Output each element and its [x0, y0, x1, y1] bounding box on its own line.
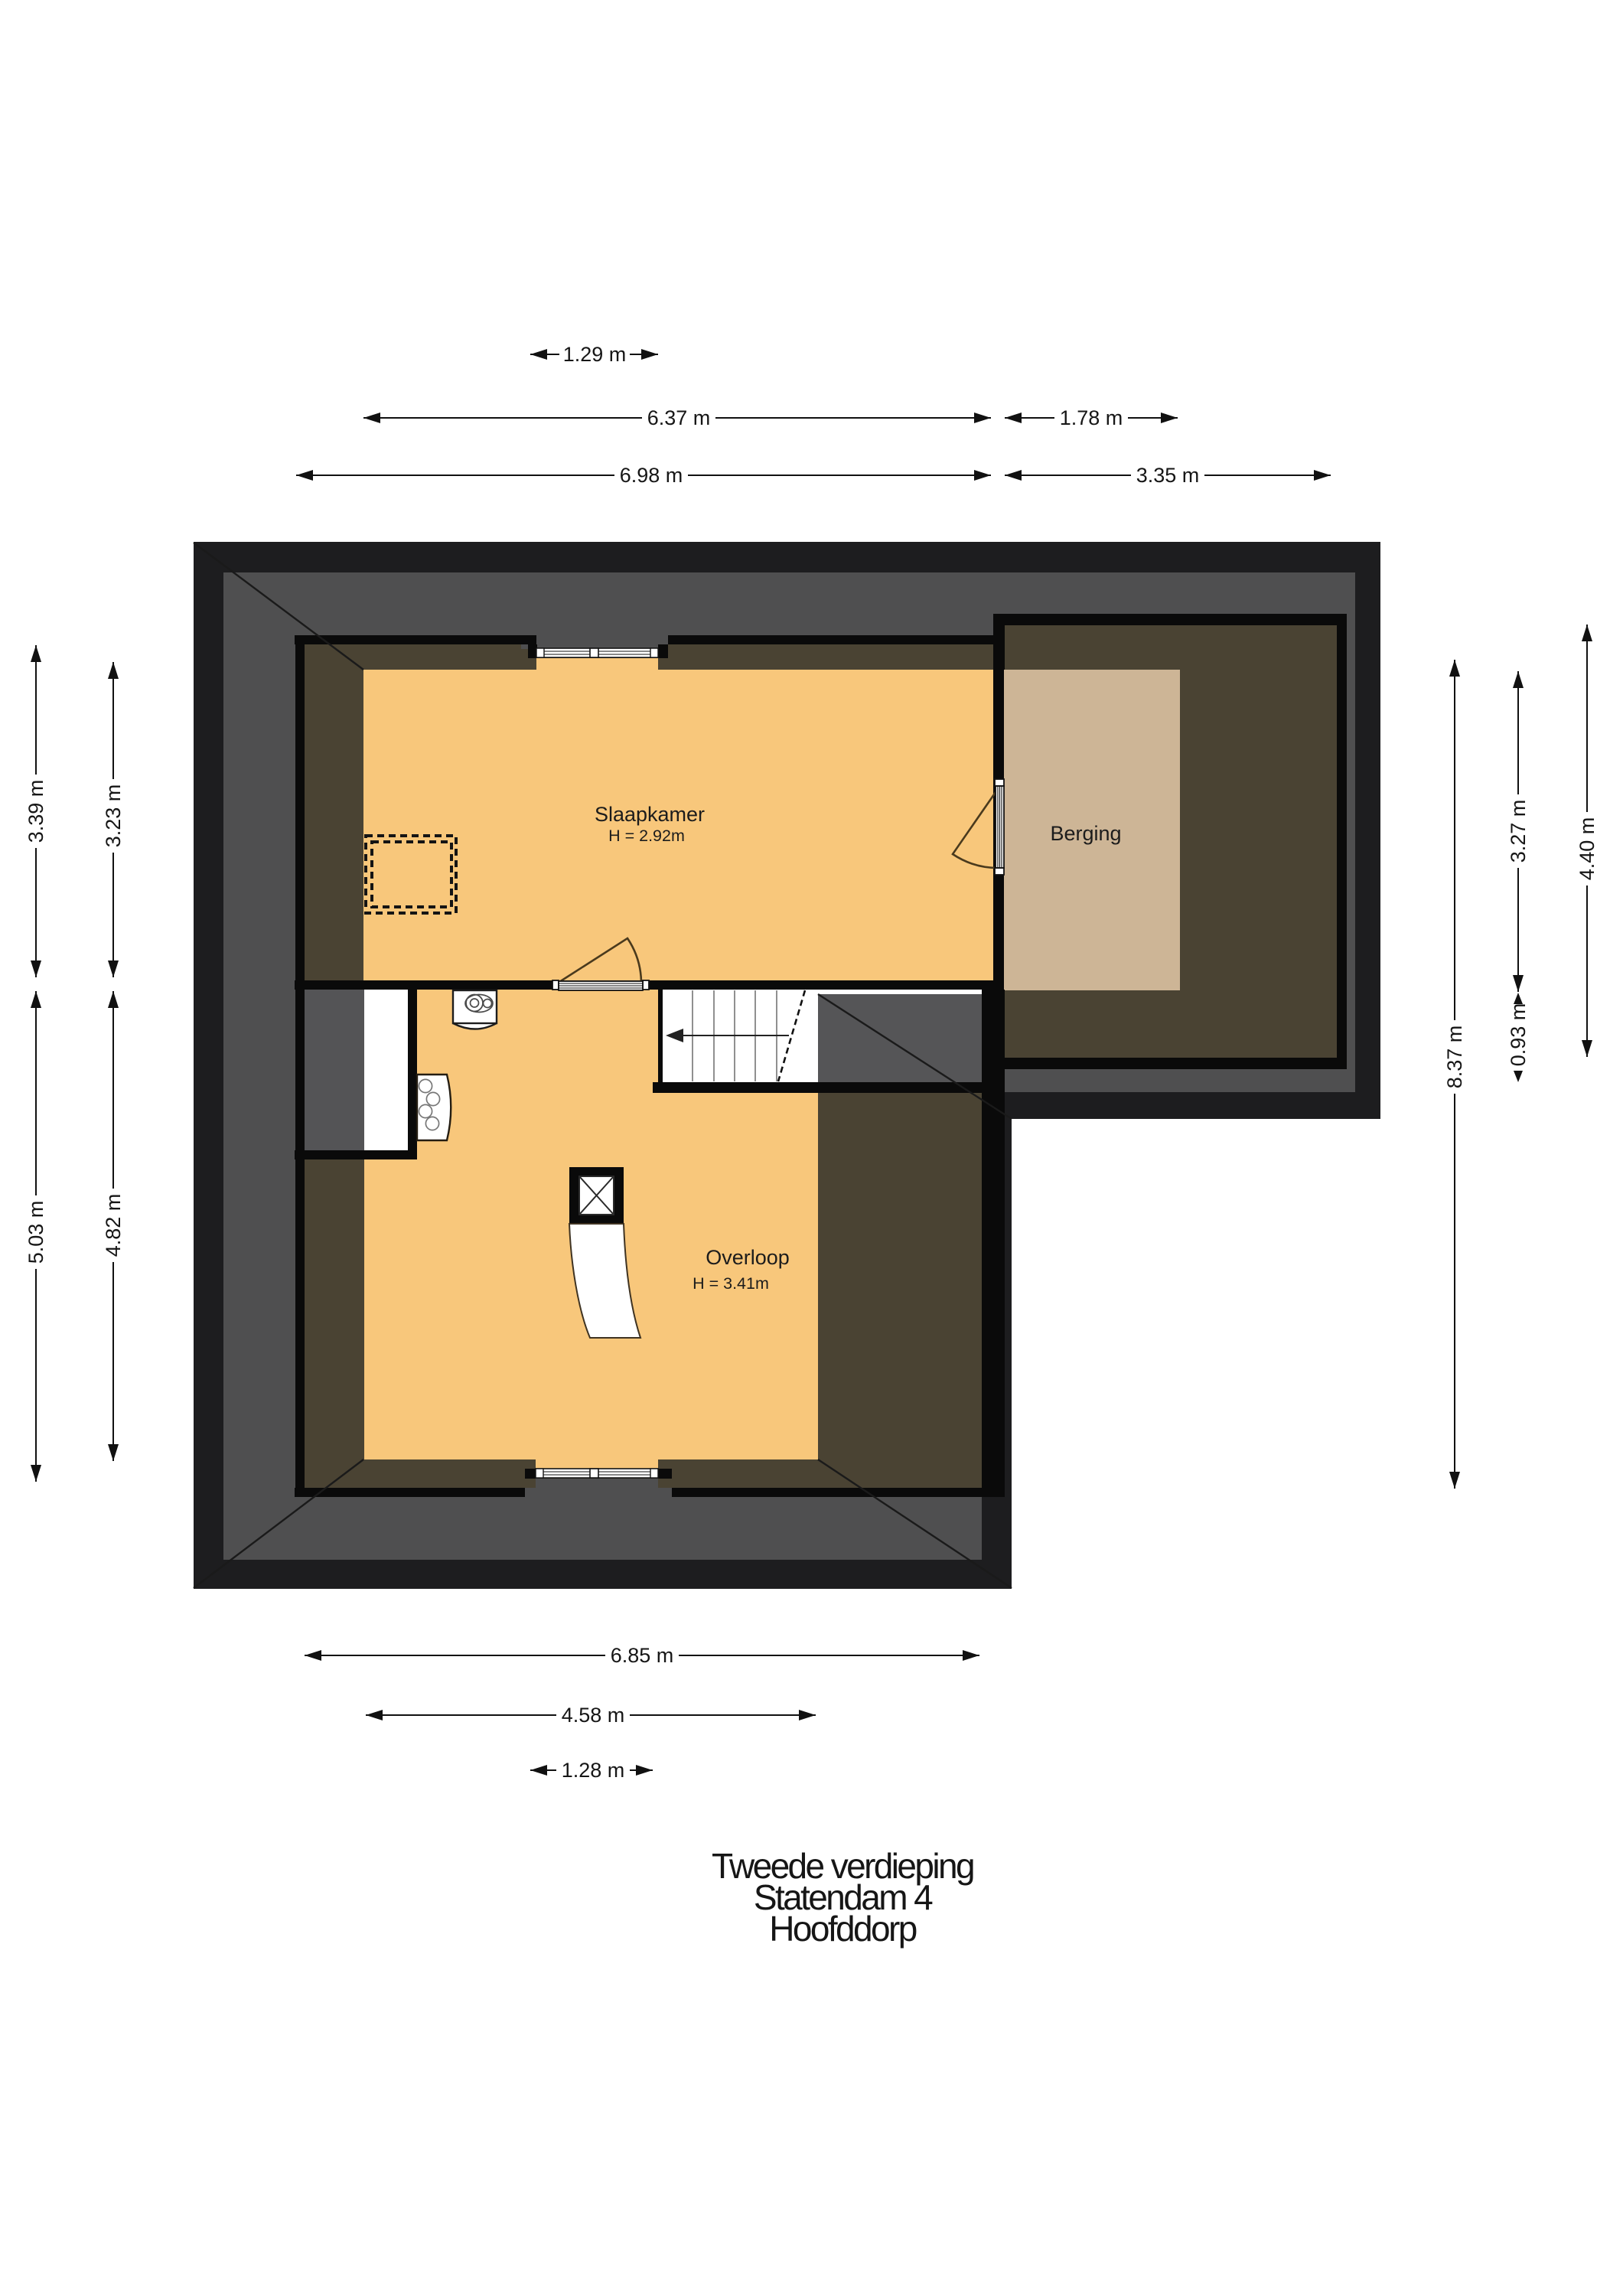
- svg-text:Overloop: Overloop: [706, 1246, 790, 1269]
- svg-text:4.82 m: 4.82 m: [102, 1194, 125, 1257]
- svg-text:Slaapkamer: Slaapkamer: [595, 803, 705, 826]
- svg-text:0.93 m: 0.93 m: [1507, 1003, 1530, 1067]
- svg-text:3.27 m: 3.27 m: [1507, 800, 1530, 863]
- svg-text:3.35 m: 3.35 m: [1136, 464, 1200, 487]
- svg-text:3.23 m: 3.23 m: [102, 784, 125, 848]
- svg-text:4.40 m: 4.40 m: [1576, 817, 1599, 881]
- svg-text:1.29 m: 1.29 m: [563, 343, 627, 366]
- svg-text:H = 2.92m: H = 2.92m: [608, 827, 685, 845]
- svg-text:6.85 m: 6.85 m: [611, 1644, 674, 1667]
- svg-text:5.03 m: 5.03 m: [24, 1201, 47, 1264]
- svg-text:8.37 m: 8.37 m: [1443, 1026, 1466, 1089]
- svg-text:6.98 m: 6.98 m: [620, 464, 683, 487]
- svg-text:1.78 m: 1.78 m: [1060, 406, 1123, 429]
- svg-text:H = 3.41m: H = 3.41m: [693, 1274, 769, 1293]
- svg-text:4.58 m: 4.58 m: [562, 1704, 625, 1727]
- svg-text:6.37 m: 6.37 m: [647, 406, 711, 429]
- svg-text:1.28 m: 1.28 m: [562, 1759, 625, 1782]
- svg-text:Berging: Berging: [1050, 822, 1121, 845]
- svg-text:Hoofddorp: Hoofddorp: [769, 1909, 916, 1949]
- svg-text:3.39 m: 3.39 m: [24, 780, 47, 843]
